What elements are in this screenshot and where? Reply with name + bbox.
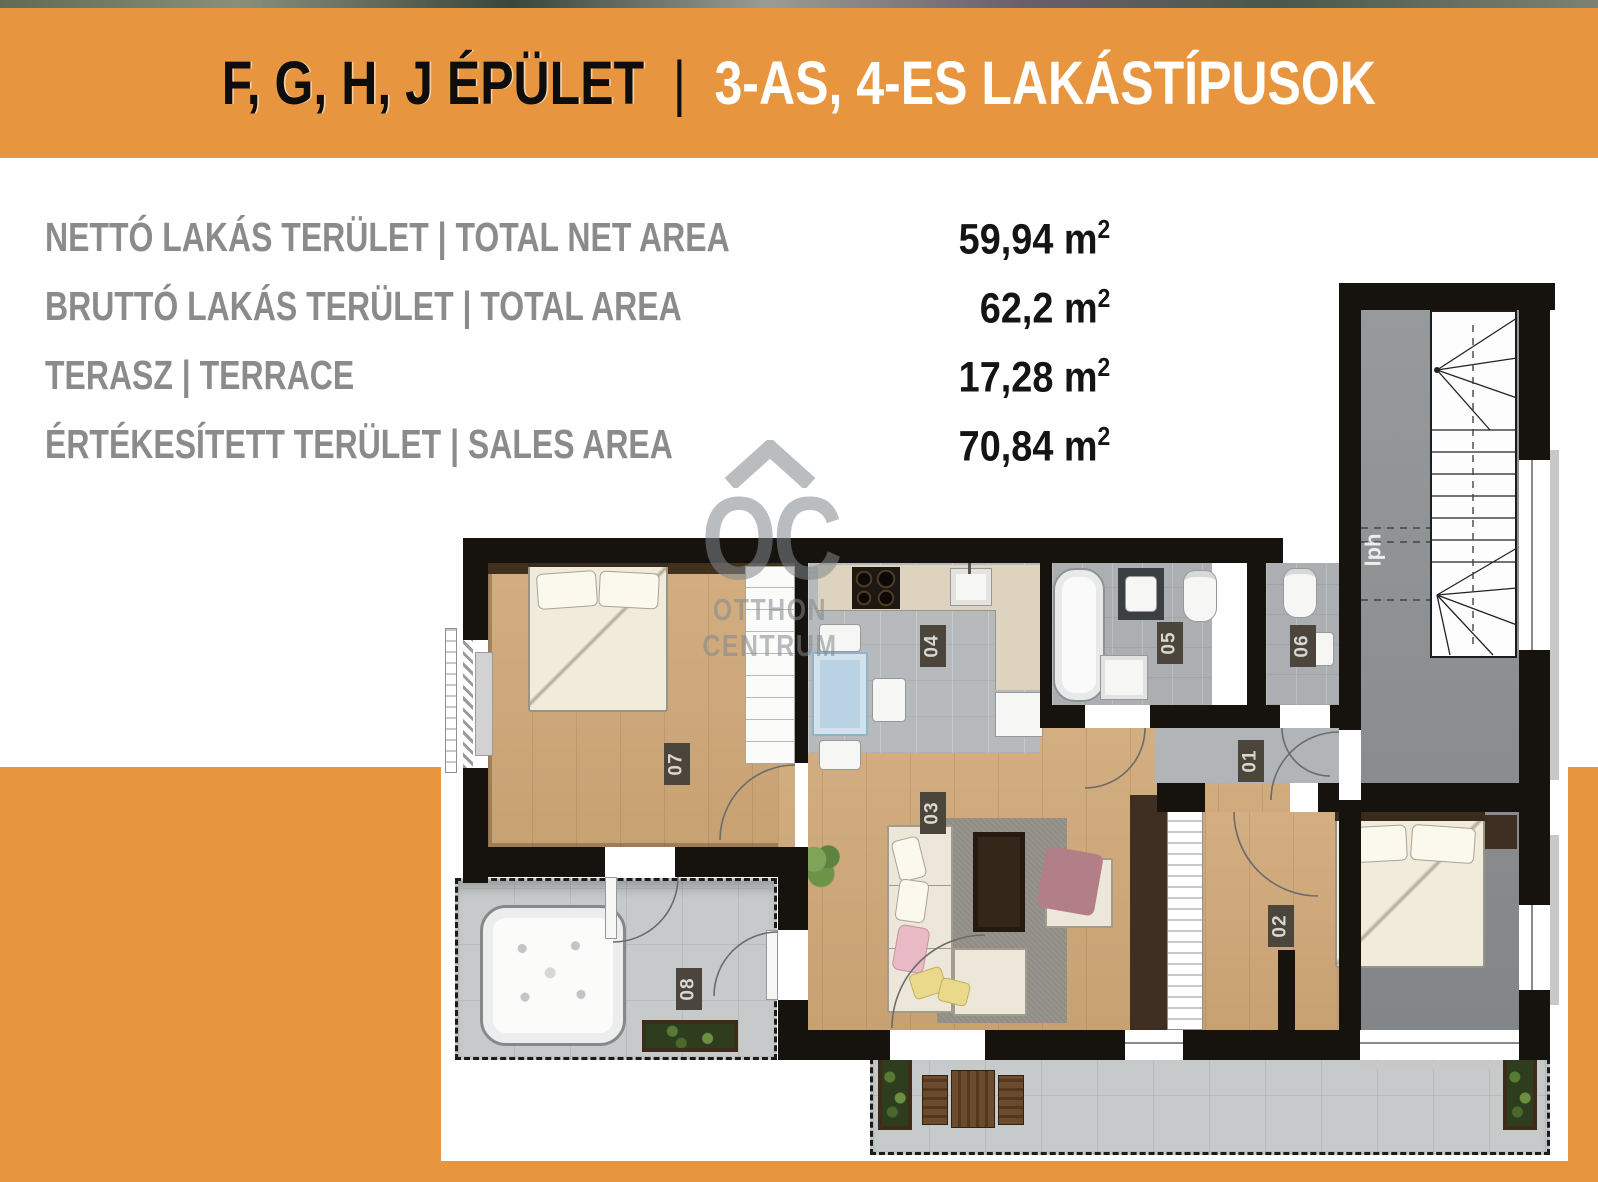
title-apartment-types: 3-AS, 4-ES LAKÁSTÍPUSOK <box>715 49 1376 117</box>
header-banner: F, G, H, J ÉPÜLET | 3-AS, 4-ES LAKÁSTÍPU… <box>0 8 1598 158</box>
stair-label-lph: lph <box>1360 515 1386 585</box>
page-title: F, G, H, J ÉPÜLET | 3-AS, 4-ES LAKÁSTÍPU… <box>222 48 1376 118</box>
room-label-04: 04 <box>920 625 946 667</box>
orange-left-block <box>0 767 441 1182</box>
plan-linework <box>445 280 1565 1165</box>
stat-label: NETTÓ LAKÁS TERÜLET | TOTAL NET AREA <box>45 214 730 261</box>
title-building: F, G, H, J ÉPÜLET <box>222 49 644 117</box>
room-label-05: 05 <box>1157 622 1183 664</box>
stat-row-net-area: NETTÓ LAKÁS TERÜLET | TOTAL NET AREA 59,… <box>45 214 1110 257</box>
room-label-03: 03 <box>920 792 946 834</box>
flyer-page: F, G, H, J ÉPÜLET | 3-AS, 4-ES LAKÁSTÍPU… <box>0 0 1598 1182</box>
room-label-02: 02 <box>1268 905 1294 947</box>
orange-right-strip <box>1568 767 1598 1182</box>
stat-value: 59,94 m2 <box>958 214 1110 264</box>
room-label-06: 06 <box>1290 625 1316 667</box>
top-photo-strip <box>0 0 1598 8</box>
stat-label: TERASZ | TERRACE <box>45 352 354 399</box>
room-label-01: 01 <box>1238 740 1264 782</box>
room-label-07: 07 <box>664 743 690 785</box>
floor-plan: 07 04 05 06 01 03 02 08 lph OC OTTHON CE… <box>445 280 1565 1165</box>
title-separator: | <box>673 49 686 117</box>
room-label-08: 08 <box>676 968 702 1010</box>
